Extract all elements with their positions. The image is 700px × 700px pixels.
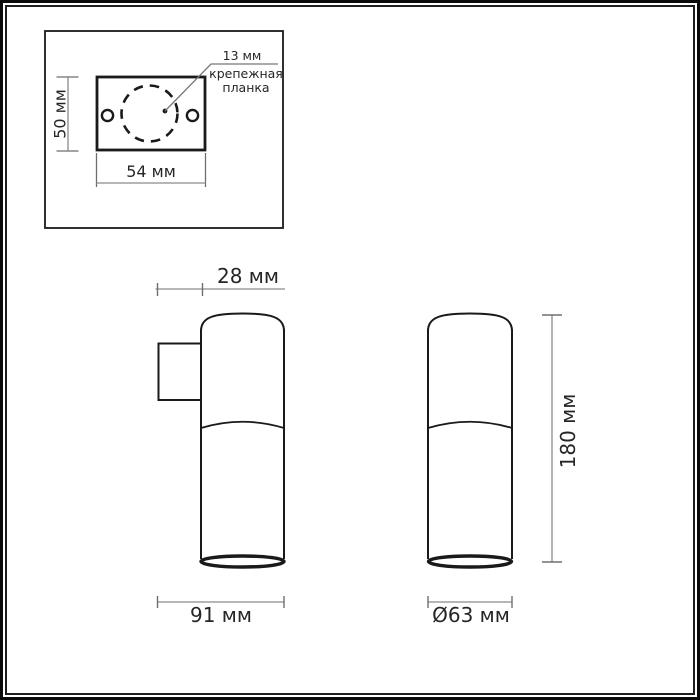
bracket-label-line2: планка — [222, 80, 269, 95]
wall-mount-view: 28 мм 91 мм — [156, 264, 286, 627]
screw-hole-right — [187, 110, 198, 121]
plate-width-label: 54 мм — [126, 162, 176, 181]
wall-bracket-outline — [159, 344, 202, 401]
bracket-depth-label: 28 мм — [217, 264, 279, 288]
dashed-cutout-circle — [122, 86, 178, 142]
screw-hole-left — [102, 110, 113, 121]
height-label: 180 мм — [556, 394, 580, 469]
leader-dim-label: 13 мм — [223, 48, 262, 63]
total-depth-label: 91 мм — [190, 603, 252, 627]
drawing-canvas: 13 мм крепежная планка 50 мм 54 мм 28 мм — [0, 0, 700, 700]
diameter-label: Ø63 мм — [432, 603, 510, 627]
cylinder-bottom-rim — [429, 556, 512, 567]
cylinder-seam — [201, 422, 284, 428]
technical-drawing: 13 мм крепежная планка 50 мм 54 мм 28 мм — [0, 0, 700, 700]
bracket-label-line1: крепежная — [209, 66, 283, 81]
cylinder-bottom-rim — [201, 556, 284, 567]
body-view: 180 мм Ø63 мм — [428, 314, 580, 628]
cylinder-seam — [428, 422, 512, 428]
plate-height-label: 50 мм — [51, 89, 70, 139]
mounting-plate-inset: 13 мм крепежная планка 50 мм 54 мм — [45, 31, 283, 228]
cylinder-top-cap — [428, 314, 512, 332]
cylinder-top-cap — [201, 314, 284, 332]
